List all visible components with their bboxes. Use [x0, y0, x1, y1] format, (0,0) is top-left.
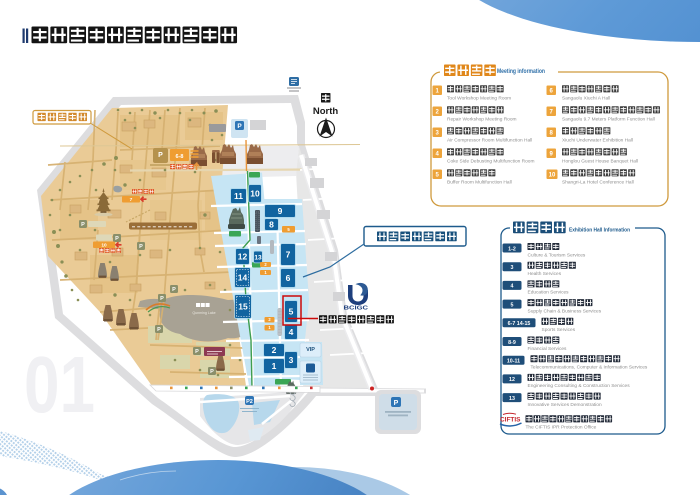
- svg-text:12: 12: [238, 252, 248, 262]
- svg-text:4: 4: [511, 284, 514, 290]
- svg-text:9: 9: [278, 206, 283, 216]
- svg-text:Telecommunications, Computer &: Telecommunications, Computer & Informati…: [531, 365, 648, 371]
- svg-text:P: P: [139, 244, 143, 250]
- svg-text:Financial Services: Financial Services: [528, 346, 568, 352]
- svg-text:11: 11: [234, 191, 243, 201]
- svg-text:P: P: [160, 296, 164, 302]
- svg-text:8: 8: [269, 220, 274, 230]
- svg-text:Buffer Room Multifunction Hall: Buffer Room Multifunction Hall: [447, 179, 512, 185]
- svg-text:P: P: [158, 152, 163, 159]
- svg-text:P: P: [157, 327, 161, 333]
- svg-text:Culture & Tourism Services: Culture & Tourism Services: [528, 252, 586, 258]
- svg-text:P: P: [115, 236, 119, 242]
- svg-text:01: 01: [24, 340, 95, 429]
- svg-text:VIP: VIP: [306, 347, 315, 353]
- svg-text:6-7 14-15: 6-7 14-15: [508, 321, 531, 327]
- svg-text:10-11: 10-11: [507, 359, 520, 365]
- svg-text:12: 12: [509, 377, 515, 383]
- svg-text:P2: P2: [246, 399, 253, 405]
- svg-text:P: P: [81, 222, 85, 228]
- svg-text:10: 10: [549, 173, 556, 179]
- svg-text:13: 13: [509, 396, 515, 402]
- svg-text:P: P: [237, 123, 242, 130]
- svg-text:6: 6: [286, 273, 291, 283]
- svg-text:Honglou Guest House Banquet Ha: Honglou Guest House Banquet Hall: [562, 158, 638, 164]
- svg-text:Sangaolu 9.7 Meters Platform F: Sangaolu 9.7 Meters Platform Function Ha…: [562, 116, 655, 122]
- svg-text:P: P: [195, 349, 199, 355]
- svg-text:5: 5: [289, 307, 294, 317]
- svg-text:Xiuchi Underwater Exhibition H: Xiuchi Underwater Exhibition Hall: [562, 137, 633, 143]
- svg-text:The CIFTIS IPR Protection Offi: The CIFTIS IPR Protection Office: [526, 424, 597, 430]
- svg-text:Innovative Services Demonstrat: Innovative Services Demonstration: [528, 402, 602, 408]
- svg-text:8-9: 8-9: [508, 340, 516, 346]
- svg-text:3: 3: [511, 265, 514, 271]
- svg-text:Qunming Lake: Qunming Lake: [192, 311, 215, 315]
- svg-text:1-2: 1-2: [508, 246, 516, 252]
- svg-text:Health Services: Health Services: [528, 271, 562, 277]
- svg-text:Tool Workshop Meeting Room: Tool Workshop Meeting Room: [447, 95, 511, 101]
- svg-text:7: 7: [286, 250, 291, 260]
- svg-text:10: 10: [250, 189, 260, 199]
- svg-text:Sports Services: Sports Services: [542, 327, 576, 333]
- svg-text:Meeting information: Meeting information: [497, 69, 545, 75]
- svg-text:BCIGC: BCIGC: [344, 306, 369, 312]
- svg-text:15: 15: [238, 302, 248, 312]
- svg-text:Education Services: Education Services: [528, 290, 570, 296]
- svg-text:4: 4: [289, 327, 294, 337]
- svg-text:6-8: 6-8: [176, 154, 184, 160]
- svg-text:North: North: [313, 106, 339, 117]
- svg-text:Shangri-La Hotel Conference Ha: Shangri-La Hotel Conference Hall: [562, 179, 634, 185]
- svg-text:Sangaolu Xiuchi A Hall: Sangaolu Xiuchi A Hall: [562, 95, 610, 101]
- svg-text:Coke Side Debusting Multifunct: Coke Side Debusting Multifunction Room: [447, 158, 534, 164]
- svg-text:14: 14: [238, 273, 248, 283]
- svg-text:Air Compressor Room Multifunct: Air Compressor Room Multifunction Hall: [447, 137, 532, 143]
- svg-text:Engineering Consulting & Const: Engineering Consulting & Construction Se…: [528, 383, 631, 389]
- svg-text:7: 7: [130, 197, 133, 203]
- svg-text:P: P: [172, 287, 176, 293]
- svg-text:Repair Workshop Meeting Room: Repair Workshop Meeting Room: [447, 116, 517, 122]
- svg-text:P: P: [394, 400, 399, 407]
- svg-text:CIFTIS: CIFTIS: [500, 417, 521, 424]
- svg-text:Supply Chain & Business Servic: Supply Chain & Business Services: [528, 308, 602, 314]
- svg-text:Exhibition Hall Information: Exhibition Hall Information: [569, 228, 630, 234]
- svg-text:10: 10: [101, 242, 107, 248]
- svg-text:3: 3: [289, 355, 294, 365]
- svg-text:5: 5: [511, 302, 514, 308]
- svg-text:P: P: [210, 369, 214, 375]
- svg-text:2: 2: [272, 345, 277, 355]
- svg-text:13: 13: [254, 254, 262, 261]
- svg-text:1: 1: [272, 361, 277, 371]
